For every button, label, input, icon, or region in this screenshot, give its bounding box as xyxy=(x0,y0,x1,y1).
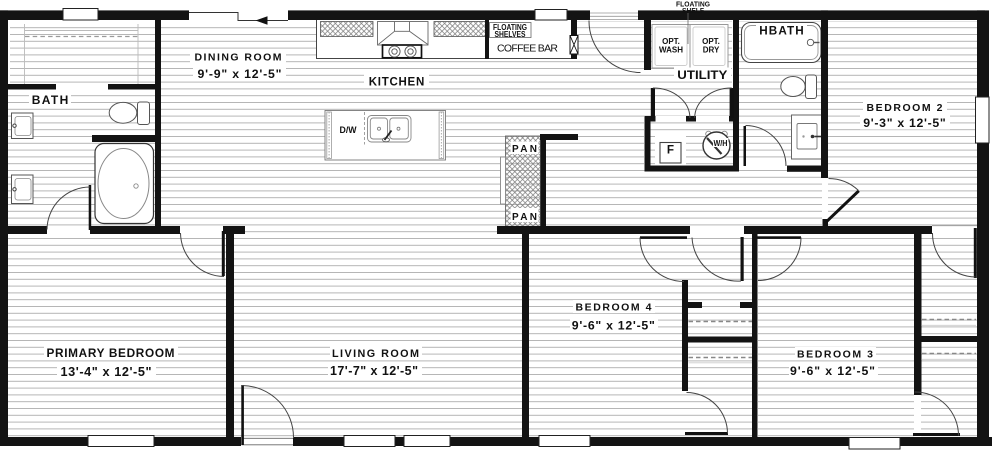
svg-text:13'-4" x 12'-5": 13'-4" x 12'-5" xyxy=(61,365,152,379)
svg-text:17'-7" x 12'-5": 17'-7" x 12'-5" xyxy=(330,364,418,378)
svg-text:9'-6" x 12'-5": 9'-6" x 12'-5" xyxy=(572,319,655,333)
svg-text:UTILITY: UTILITY xyxy=(677,68,727,82)
svg-text:COFFEE BAR: COFFEE BAR xyxy=(497,43,558,55)
svg-text:BATH: BATH xyxy=(32,93,69,107)
svg-text:DRY: DRY xyxy=(703,46,720,55)
svg-text:W/H: W/H xyxy=(714,139,728,148)
svg-text:PAN: PAN xyxy=(512,144,537,155)
svg-text:F: F xyxy=(667,143,674,156)
svg-text:BEDROOM 4: BEDROOM 4 xyxy=(576,302,652,314)
svg-text:SHELF: SHELF xyxy=(682,6,704,15)
svg-text:9'-9" x 12'-5": 9'-9" x 12'-5" xyxy=(198,67,282,81)
svg-text:D/W: D/W xyxy=(340,125,357,136)
svg-text:PAN: PAN xyxy=(512,212,537,223)
svg-text:DINING ROOM: DINING ROOM xyxy=(195,52,282,64)
svg-text:9'-6" x 12'-5": 9'-6" x 12'-5" xyxy=(790,364,875,378)
svg-text:BEDROOM 3: BEDROOM 3 xyxy=(797,349,873,361)
svg-text:SHELVES: SHELVES xyxy=(495,30,526,39)
svg-text:HBATH: HBATH xyxy=(759,25,804,38)
svg-text:BEDROOM 2: BEDROOM 2 xyxy=(867,102,943,114)
svg-text:KITCHEN: KITCHEN xyxy=(369,77,425,89)
svg-text:PRIMARY BEDROOM: PRIMARY BEDROOM xyxy=(47,346,175,360)
svg-text:WASH: WASH xyxy=(659,46,683,55)
svg-text:9'-3" x 12'-5": 9'-3" x 12'-5" xyxy=(863,116,946,130)
